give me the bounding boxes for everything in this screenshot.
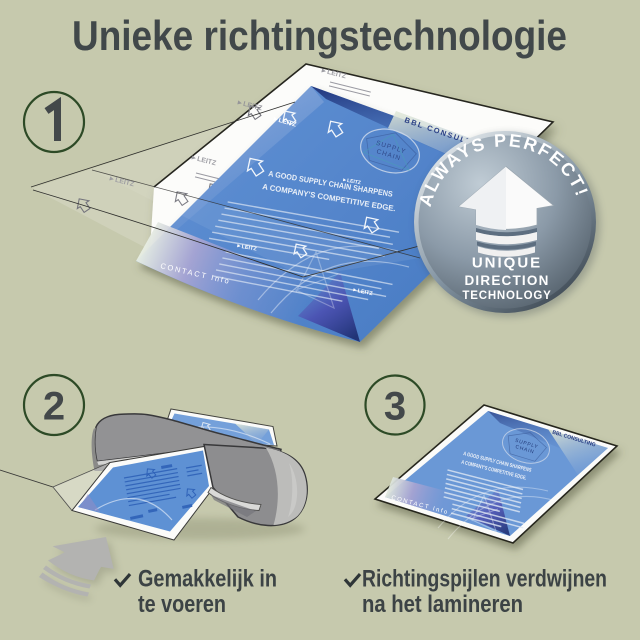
svg-text:UNIQUE: UNIQUE	[472, 255, 542, 272]
svg-text:DIRECTION: DIRECTION	[464, 273, 549, 288]
svg-text:2: 2	[43, 385, 65, 429]
svg-text:te voeren: te voeren	[138, 591, 226, 618]
svg-text:TECHNOLOGY: TECHNOLOGY	[462, 290, 551, 302]
svg-text:na het lamineren: na het lamineren	[362, 591, 523, 618]
svg-text:Unieke richtingstechnologie: Unieke richtingstechnologie	[72, 12, 567, 59]
svg-text:3: 3	[384, 385, 406, 429]
svg-text:Gemakkelijk in: Gemakkelijk in	[138, 566, 277, 593]
svg-text:Richtingspijlen verdwijnen: Richtingspijlen verdwijnen	[362, 566, 607, 593]
